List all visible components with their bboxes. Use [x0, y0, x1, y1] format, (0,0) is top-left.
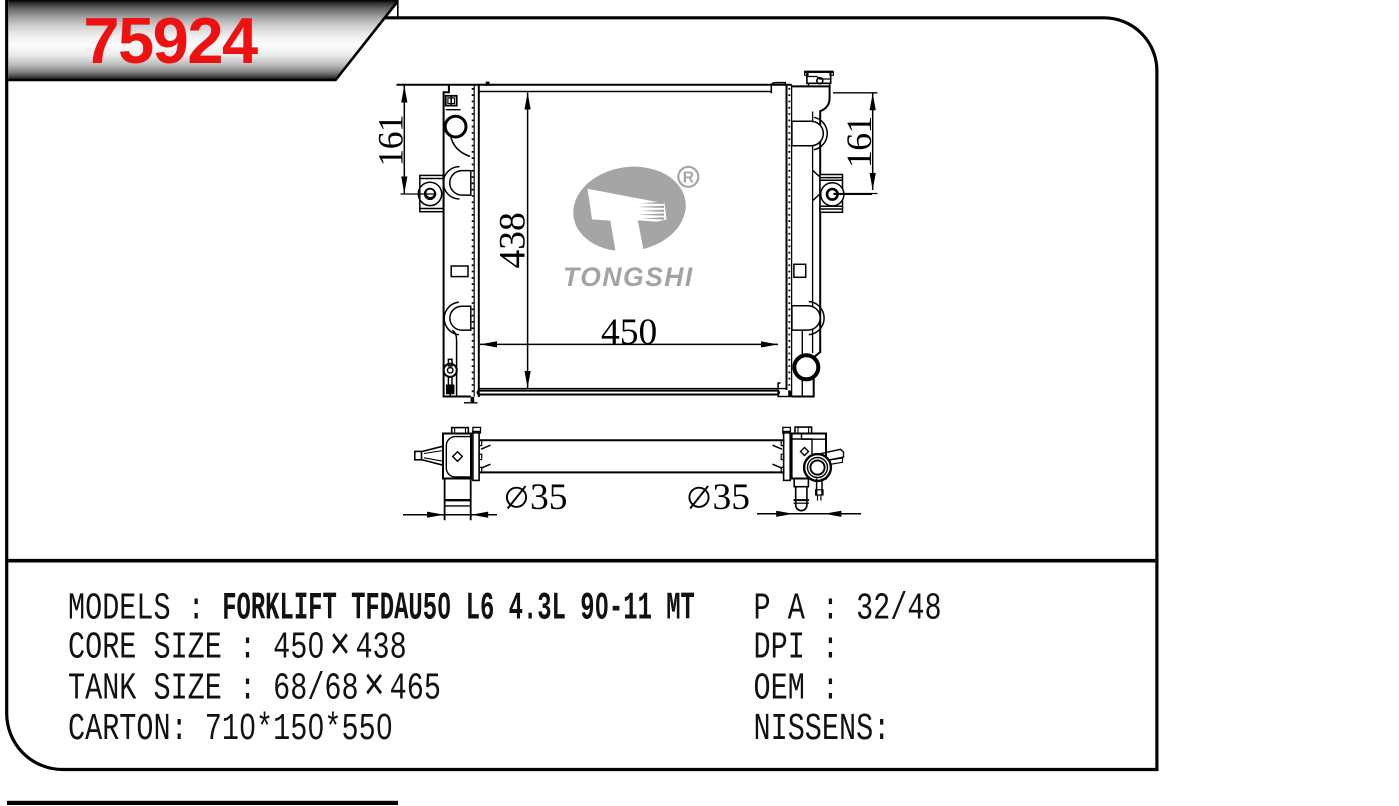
svg-text:CORE SIZE : 450×438: CORE SIZE : 450×438: [68, 622, 407, 674]
svg-text:35: 35: [713, 477, 751, 518]
svg-text:35: 35: [530, 477, 568, 518]
svg-text:OEM :: OEM :: [754, 668, 839, 711]
svg-text:438: 438: [493, 212, 534, 268]
svg-text:TANK SIZE : 68/68×465: TANK SIZE : 68/68×465: [68, 663, 441, 715]
svg-text:TONGSHI: TONGSHI: [563, 262, 694, 292]
svg-text:161: 161: [839, 116, 879, 168]
svg-text:FORKLIFT TFDAU50 L6 4.3L 90-11: FORKLIFT TFDAU50 L6 4.3L 90-11 MT: [222, 586, 695, 631]
svg-text:CARTON: 710*150*550: CARTON: 710*150*550: [68, 709, 393, 752]
svg-text:R: R: [683, 170, 694, 187]
svg-text:P A : 32/48: P A : 32/48: [754, 588, 942, 631]
svg-text:NISSENS:: NISSENS:: [754, 709, 891, 752]
svg-text:450: 450: [601, 312, 657, 353]
svg-text:161: 161: [371, 115, 411, 167]
svg-text:MODELS :: MODELS :: [68, 588, 205, 631]
svg-text:75924: 75924: [83, 4, 258, 77]
svg-text:DPI :: DPI :: [754, 627, 839, 670]
